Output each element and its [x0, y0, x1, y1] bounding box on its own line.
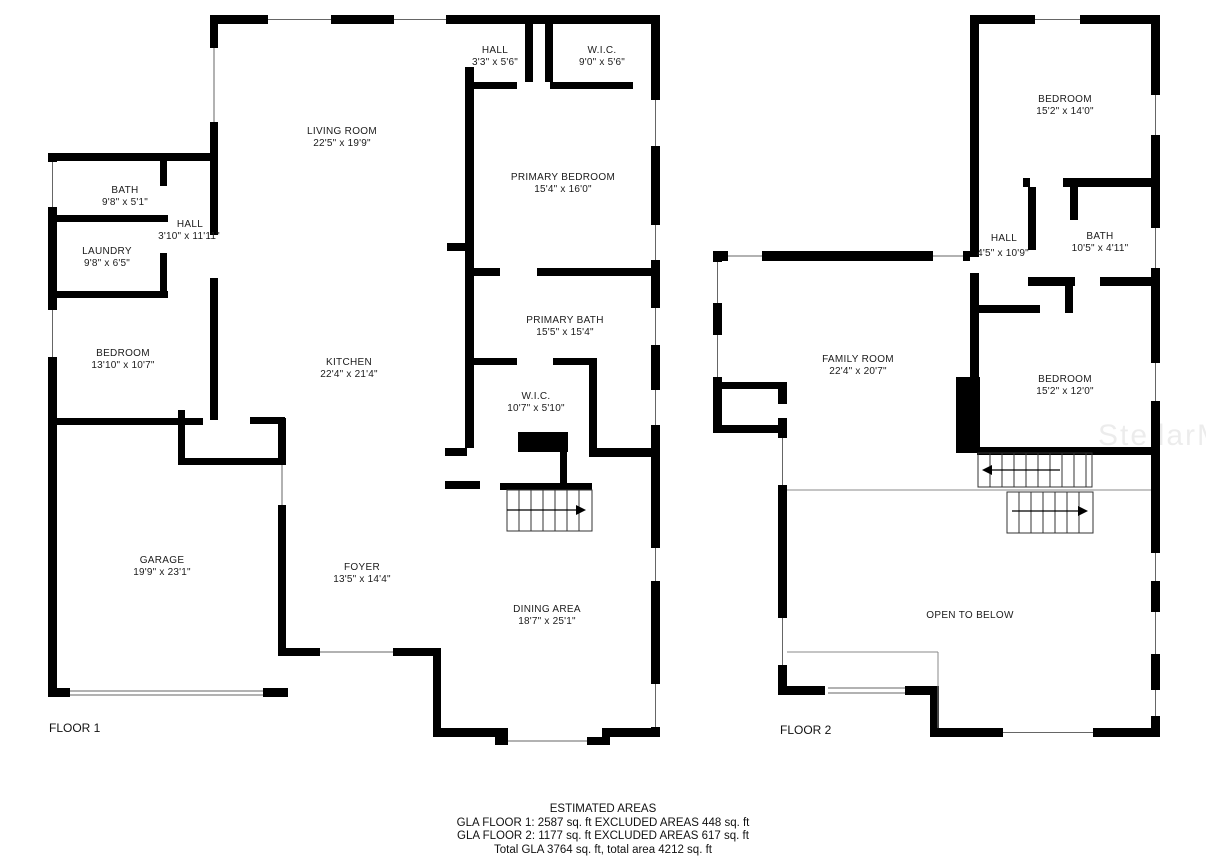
room-label-laundry: LAUNDRY: [82, 246, 132, 257]
floor1-stairs: [507, 490, 592, 531]
footer-gla-floor1: GLA FLOOR 1: 2587 sq. ft EXCLUDED AREAS …: [457, 817, 751, 829]
room-label-bath2: BATH: [1086, 231, 1113, 242]
floor1-room-labels: BATH 9'8" x 5'1" HALL 3'10" x 11'11" LAU…: [82, 45, 625, 627]
room-dims-bedroom-top: 15'2" x 14'0": [1036, 106, 1094, 117]
room-dims-hall2: 4'5" x 10'9": [977, 248, 1029, 259]
room-dims-dining: 18'7" x 25'1": [518, 616, 576, 627]
room-dims-primary-bedroom: 15'4" x 16'0": [534, 184, 592, 195]
room-label-bath: BATH: [111, 185, 138, 196]
room-dims-bath: 9'8" x 5'1": [102, 197, 148, 208]
floor2-stairs: [978, 453, 1093, 533]
room-label-garage: GARAGE: [140, 555, 185, 566]
room-dims-wic: 10'7" x 5'10": [507, 403, 565, 414]
floorplan-drawing: BATH 9'8" x 5'1" HALL 3'10" x 11'11" LAU…: [0, 0, 1206, 861]
room-label-primary-bedroom: PRIMARY BEDROOM: [511, 172, 615, 183]
floor1-label: FLOOR 1: [49, 721, 101, 735]
room-dims-bedroom-right: 15'2" x 12'0": [1036, 386, 1094, 397]
floor1-plan: BATH 9'8" x 5'1" HALL 3'10" x 11'11" LAU…: [48, 15, 660, 745]
room-label-bedroom-top: BEDROOM: [1038, 94, 1092, 105]
room-label-hall-top: HALL: [482, 45, 508, 56]
floorplan-page: BATH 9'8" x 5'1" HALL 3'10" x 11'11" LAU…: [0, 0, 1206, 861]
room-label-open-to-below: OPEN TO BELOW: [926, 610, 1014, 621]
room-label-dining: DINING AREA: [513, 604, 581, 615]
room-label-foyer: FOYER: [344, 562, 380, 573]
room-label-primary-bath: PRIMARY BATH: [526, 315, 604, 326]
footer-gla-floor2: GLA FLOOR 2: 1177 sq. ft EXCLUDED AREAS …: [457, 830, 750, 842]
room-dims-hall-top: 3'3" x 5'6": [472, 57, 518, 68]
room-label-wic-top: W.I.C.: [587, 45, 616, 56]
room-dims-primary-bath: 15'5" x 15'4": [536, 327, 594, 338]
room-dims-bedroom: 13'10" x 10'7": [91, 360, 154, 371]
room-dims-laundry: 9'8" x 6'5": [84, 258, 130, 269]
room-dims-garage: 19'9" x 23'1": [133, 567, 191, 578]
room-label-kitchen: KITCHEN: [326, 357, 372, 368]
room-dims-family-room: 22'4" x 20'7": [829, 366, 887, 377]
room-dims-kitchen: 22'4" x 21'4": [320, 369, 378, 380]
footer-title: ESTIMATED AREAS: [550, 803, 657, 815]
footer-total: Total GLA 3764 sq. ft, total area 4212 s…: [494, 844, 713, 856]
stellar-mls-watermark: StellarMLS: [1098, 419, 1206, 452]
room-label-wic: W.I.C.: [521, 391, 550, 402]
room-dims-living-room: 22'5" x 19'9": [313, 138, 371, 149]
room-label-hall2: HALL: [991, 233, 1017, 244]
room-dims-hall: 3'10" x 11'11": [158, 231, 220, 242]
floor2-plan: BEDROOM 15'2" x 14'0" HALL 4'5" x 10'9" …: [713, 15, 1160, 737]
floor1-windows: [48, 15, 660, 745]
room-label-bedroom-right: BEDROOM: [1038, 374, 1092, 385]
room-label-living-room: LIVING ROOM: [307, 126, 377, 137]
room-dims-bath2: 10'5" x 4'11": [1072, 243, 1129, 254]
floor2-label: FLOOR 2: [780, 723, 832, 737]
room-dims-wic-top: 9'0" x 5'6": [579, 57, 625, 68]
estimated-areas-footer: ESTIMATED AREAS GLA FLOOR 1: 2587 sq. ft…: [457, 803, 751, 856]
floor2-windows: [713, 15, 1160, 737]
room-label-family-room: FAMILY ROOM: [822, 354, 894, 365]
floor1-walls: [48, 15, 660, 745]
room-dims-foyer: 13'5" x 14'4": [333, 574, 391, 585]
room-label-hall: HALL: [177, 219, 203, 230]
open-to-below-edges: [787, 490, 1151, 728]
room-label-bedroom: BEDROOM: [96, 348, 150, 359]
